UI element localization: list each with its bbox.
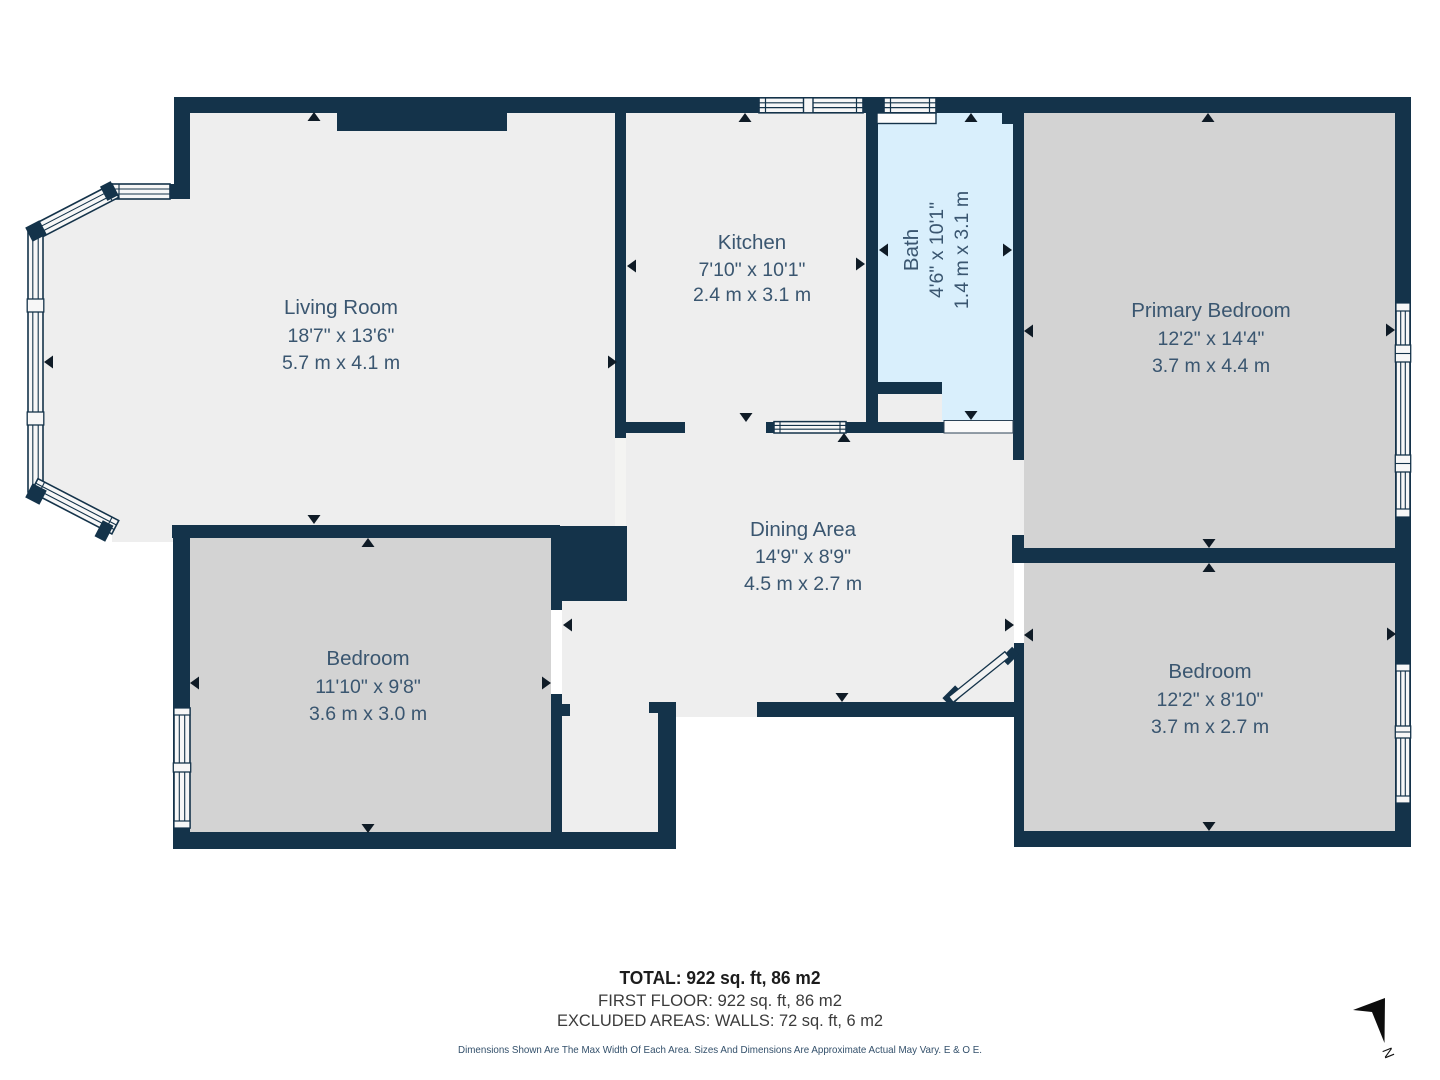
svg-text:3.6 m x 3.0 m: 3.6 m x 3.0 m <box>309 703 427 725</box>
svg-text:Dimensions Shown Are The Max W: Dimensions Shown Are The Max Width Of Ea… <box>458 1044 982 1056</box>
svg-text:3.7 m x 4.4 m: 3.7 m x 4.4 m <box>1152 355 1270 377</box>
svg-text:12'2" x 14'4": 12'2" x 14'4" <box>1158 328 1265 350</box>
svg-text:18'7" x 13'6": 18'7" x 13'6" <box>288 325 395 347</box>
svg-text:Living Room: Living Room <box>284 296 398 319</box>
svg-text:7'10" x 10'1": 7'10" x 10'1" <box>699 259 806 281</box>
svg-text:14'9" x 8'9": 14'9" x 8'9" <box>755 546 851 568</box>
svg-text:1.4 m x 3.1 m: 1.4 m x 3.1 m <box>951 191 973 309</box>
svg-text:11'10" x 9'8": 11'10" x 9'8" <box>315 676 421 698</box>
svg-text:3.7 m x 2.7 m: 3.7 m x 2.7 m <box>1151 716 1269 738</box>
svg-text:Bath: Bath <box>900 229 923 271</box>
svg-text:12'2" x 8'10": 12'2" x 8'10" <box>1157 689 1264 711</box>
svg-text:4.5 m x 2.7 m: 4.5 m x 2.7 m <box>744 573 862 595</box>
svg-text:Primary Bedroom: Primary Bedroom <box>1131 299 1291 322</box>
svg-text:FIRST FLOOR: 922 sq. ft, 86 m2: FIRST FLOOR: 922 sq. ft, 86 m2 <box>598 991 842 1010</box>
svg-text:Dining Area: Dining Area <box>750 518 857 541</box>
svg-text:2.4 m x 3.1 m: 2.4 m x 3.1 m <box>693 284 811 306</box>
svg-text:4'6" x 10'1": 4'6" x 10'1" <box>926 202 948 298</box>
svg-text:EXCLUDED AREAS: WALLS: 72 sq.: EXCLUDED AREAS: WALLS: 72 sq. ft, 6 m2 <box>557 1011 883 1030</box>
svg-text:TOTAL: 922 sq. ft, 86 m2: TOTAL: 922 sq. ft, 86 m2 <box>620 967 821 988</box>
svg-text:Kitchen: Kitchen <box>718 231 786 254</box>
svg-text:Bedroom: Bedroom <box>326 647 409 670</box>
svg-text:5.7 m x 4.1 m: 5.7 m x 4.1 m <box>282 352 400 374</box>
svg-text:Bedroom: Bedroom <box>1168 660 1251 683</box>
